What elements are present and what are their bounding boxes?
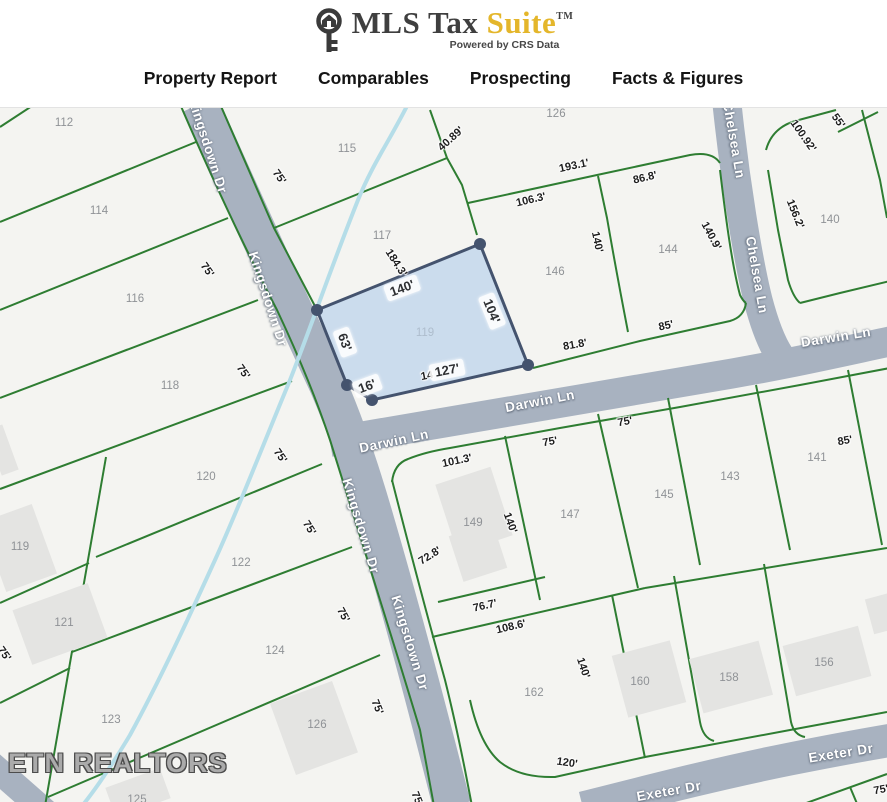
parcel-number-143: 143 [720, 471, 739, 483]
parcel-number-158: 158 [719, 672, 738, 684]
parcel-number-126: 126 [546, 108, 565, 120]
parcel-number-119: 119 [11, 541, 29, 553]
parcel-number-117: 117 [373, 230, 391, 242]
nav-comparables[interactable]: Comparables [316, 64, 431, 93]
parcel-number-118: 118 [161, 380, 179, 392]
parcel-number-149: 149 [463, 517, 482, 529]
parcel-number-156: 156 [814, 657, 833, 669]
parcel-number-160: 160 [630, 676, 649, 688]
brand-tagline: Powered by CRS Data [450, 39, 560, 51]
parcel-number-162: 162 [524, 687, 543, 699]
parcel-map[interactable]: Kingsdown DrKingsdown DrKingsdown DrKing… [0, 107, 887, 802]
brand-accent: Suite [487, 5, 557, 40]
parcel-number-144: 144 [658, 244, 677, 256]
parcel-number-140: 140 [820, 214, 839, 226]
key-icon [314, 8, 344, 54]
parcel-number-114: 114 [90, 205, 108, 217]
parcel-number-123: 123 [101, 714, 120, 726]
parcel-number-141: 141 [807, 452, 826, 464]
parcel-number-122: 122 [231, 557, 250, 569]
watermark-text: ETN REALTORS [8, 748, 228, 779]
parcel-number-115: 115 [338, 143, 356, 155]
parcel-number-124: 124 [265, 645, 284, 657]
brand-title: MLS Tax SuiteTM [352, 6, 574, 40]
parcel-number-120: 120 [196, 471, 215, 483]
mls-tax-suite-logo: MLS Tax SuiteTM Powered by CRS Data [0, 6, 887, 54]
parcel-number-145: 145 [654, 489, 673, 501]
parcel-number-126: 126 [307, 719, 326, 731]
parcel-number-147: 147 [560, 509, 579, 521]
dimension-label: 75' [542, 435, 559, 449]
dimension-label: 85' [837, 434, 854, 448]
dimension-label: 75' [617, 415, 634, 429]
nav-facts-figures[interactable]: Facts & Figures [610, 64, 745, 93]
parcel-number-125: 125 [127, 794, 146, 802]
main-nav: Property Report Comparables Prospecting … [0, 64, 887, 93]
parcel-number-121: 121 [54, 617, 73, 629]
nav-prospecting[interactable]: Prospecting [468, 64, 573, 93]
parcel-number-112: 112 [55, 117, 73, 129]
nav-property-report[interactable]: Property Report [142, 64, 279, 93]
app-header: MLS Tax SuiteTM Powered by CRS Data Prop… [0, 0, 887, 108]
trademark-symbol: TM [556, 11, 573, 22]
parcel-number-146: 146 [545, 266, 564, 278]
dimension-label: 75' [873, 783, 887, 797]
parcel-number-119: 119 [416, 327, 434, 339]
map-canvas [0, 107, 887, 802]
parcel-number-116: 116 [126, 293, 144, 305]
